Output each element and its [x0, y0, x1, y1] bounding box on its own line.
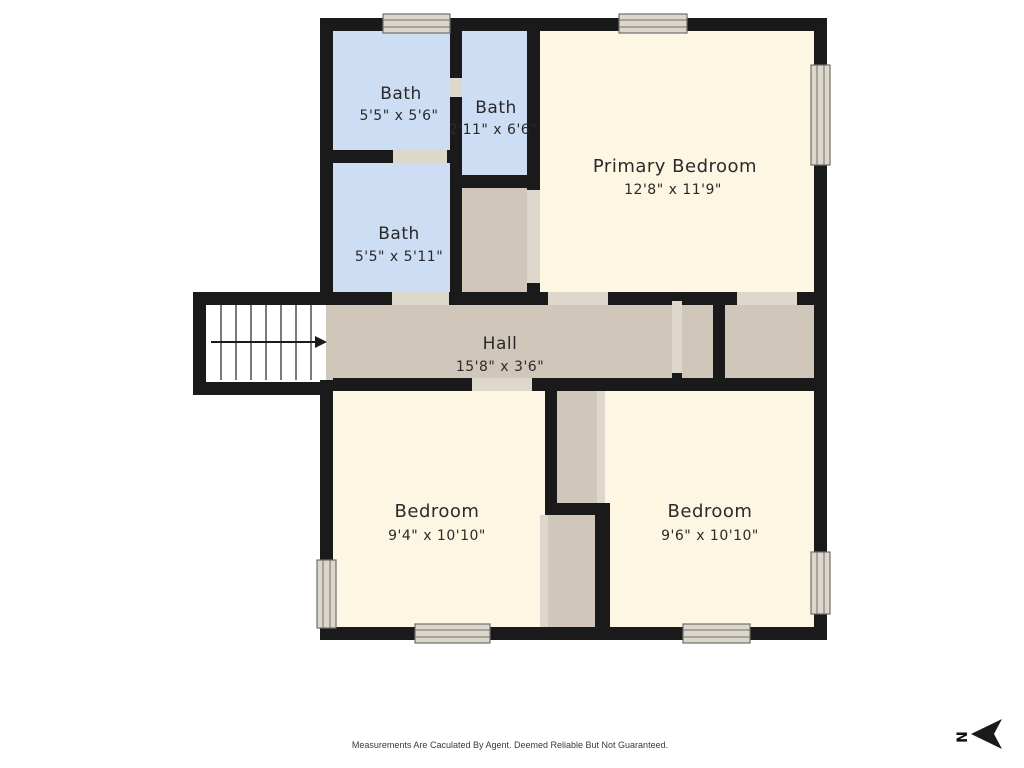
- door-primary-closet2: [737, 292, 797, 305]
- hall-label: Hall: [483, 334, 518, 354]
- floor-plan-drawing: Bath 5'5" x 5'6" Bath 2'11" x 6'6" Bath …: [0, 0, 1024, 768]
- wall-annex-top: [193, 292, 333, 305]
- wall-annex-left: [193, 292, 206, 395]
- window-right-2: [811, 552, 830, 614]
- door-hall-bedroom-left: [472, 378, 532, 391]
- north-letter: N: [955, 731, 971, 743]
- hall-dims: 15'8" x 3'6": [456, 359, 544, 375]
- wall-closet-divider: [545, 503, 610, 515]
- wall-closet-lower-right: [595, 515, 610, 627]
- bath-1-label: Bath: [380, 84, 422, 104]
- north-arrowhead: [971, 719, 1002, 749]
- bedroom-right-label: Bedroom: [668, 501, 753, 522]
- window-right-1: [811, 65, 830, 165]
- closet-upper-floor: [557, 391, 597, 503]
- door-bath1-bath2: [450, 78, 462, 97]
- bath-2-dims: 2'11" x 6'6": [449, 122, 537, 138]
- linen-closet-floor: [682, 303, 713, 380]
- disclaimer-text: Measurements Are Caculated By Agent. Dee…: [352, 740, 668, 750]
- bath-2-label: Bath: [475, 98, 517, 118]
- window-top-2: [619, 14, 687, 33]
- primary-closet-1-floor: [462, 188, 527, 303]
- closet-lower-floor: [548, 515, 595, 627]
- primary-closet-2-floor: [725, 303, 814, 380]
- primary-bedroom-label: Primary Bedroom: [593, 156, 757, 177]
- bedroom-left-dims: 9'4" x 10'10": [388, 528, 486, 544]
- wall-annex-bottom: [193, 382, 333, 395]
- north-arrow: N: [955, 719, 1002, 749]
- door-hall-bath3: [392, 292, 449, 305]
- window-top-1: [383, 14, 450, 33]
- floor-plan-page: Bath 5'5" x 5'6" Bath 2'11" x 6'6" Bath …: [0, 0, 1024, 768]
- wall-outer-left-upper: [320, 18, 333, 303]
- door-primary-closet1: [527, 190, 540, 283]
- wall-bath-divider: [450, 31, 462, 303]
- door-hall-primary: [548, 292, 608, 305]
- bath-3-dims: 5'5" x 5'11": [355, 249, 443, 265]
- door-closet-upper: [597, 391, 605, 503]
- door-closet-lower: [540, 515, 548, 627]
- wall-outer-bottom: [320, 627, 827, 640]
- bedroom-left-label: Bedroom: [395, 501, 480, 522]
- window-bottom-2: [683, 624, 750, 643]
- window-bottom-1: [415, 624, 490, 643]
- wall-closet-upper-left: [545, 391, 557, 503]
- primary-bedroom-dims: 12'8" x 11'9": [624, 182, 722, 198]
- wall-closet-mid: [713, 292, 725, 391]
- door-bath1-bath3: [393, 150, 447, 163]
- door-hall-linen: [672, 301, 682, 373]
- bedroom-right-dims: 9'6" x 10'10": [661, 528, 759, 544]
- window-left-1: [317, 560, 336, 628]
- wall-hall-bottom: [333, 378, 814, 391]
- wall-bath2-bottom: [462, 175, 527, 188]
- bath-1-dims: 5'5" x 5'6": [360, 108, 439, 124]
- bath-3-label: Bath: [378, 224, 420, 244]
